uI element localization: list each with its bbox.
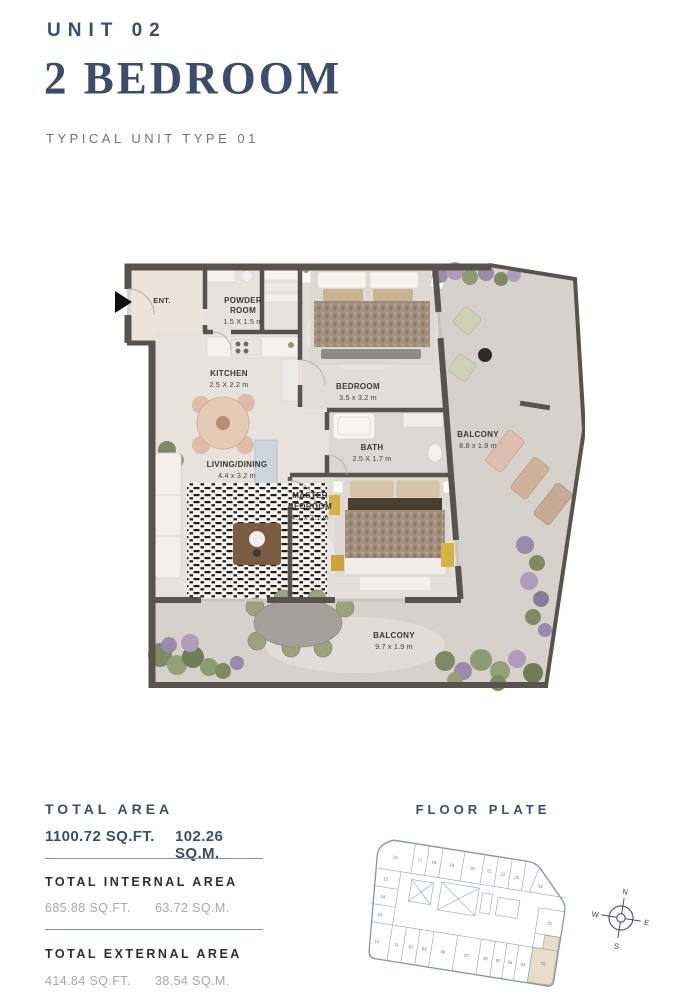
divider bbox=[45, 858, 263, 859]
compass-south: S bbox=[613, 941, 619, 951]
internal-area-values: 685.88 SQ.FT. 63.72 SQ.M. bbox=[45, 901, 263, 915]
floor-plate: FLOOR PLATE bbox=[350, 796, 682, 1000]
room-dims-bedroom: 3.5 x 3.2 m bbox=[339, 393, 377, 402]
unit-number-label: UNIT 02 bbox=[47, 20, 167, 42]
room-dims-powder: 1.5 X 1.5 m bbox=[224, 317, 263, 326]
page-title: 2 BEDROOM bbox=[44, 51, 342, 105]
room-label-entry: ENT. bbox=[153, 296, 170, 305]
floor-plan-svg: ENT. POWDER ROOM 1.5 X 1.5 m KITCHEN 2.5… bbox=[105, 255, 585, 700]
external-area-sqm: 38.54 SQ.M. bbox=[155, 974, 230, 988]
unit-type-subtitle: TYPICAL UNIT TYPE 01 bbox=[46, 131, 259, 146]
master-bed bbox=[345, 510, 445, 558]
outdoor-table bbox=[254, 599, 342, 647]
internal-area-sqm: 63.72 SQ.M. bbox=[155, 901, 230, 915]
brochure-page: UNIT 02 2 BEDROOM TYPICAL UNIT TYPE 01 bbox=[0, 0, 682, 1000]
external-area-values: 414.84 SQ.FT. 38.54 SQ.M. bbox=[45, 974, 263, 988]
divider bbox=[45, 929, 263, 930]
total-area-values: 1100.72 SQ.FT. 102.26 SQ.M. bbox=[45, 828, 263, 845]
room-dims-balcony-bottom: 9.7 x 1.9 m bbox=[375, 642, 413, 651]
internal-area-label: TOTAL INTERNAL AREA bbox=[45, 875, 263, 889]
floor-plan: ENT. POWDER ROOM 1.5 X 1.5 m KITCHEN 2.5… bbox=[105, 255, 585, 700]
sofa bbox=[155, 453, 181, 578]
compass-west: W bbox=[591, 909, 600, 919]
room-label-balcony-bottom: BALCONY bbox=[373, 631, 415, 640]
compass-east: E bbox=[643, 918, 649, 928]
internal-area-sqft: 685.88 SQ.FT. bbox=[45, 901, 131, 915]
floor-plate-title: FLOOR PLATE bbox=[350, 802, 616, 817]
room-label-powder-2: ROOM bbox=[230, 306, 256, 315]
compass-north: N bbox=[622, 887, 629, 897]
total-area-label: TOTAL AREA bbox=[45, 801, 263, 817]
room-label-bath: BATH bbox=[361, 443, 384, 452]
room-dims-bath: 2.5 X 1.7 m bbox=[353, 454, 392, 463]
floor-plate-svg: 16 17 18 19 20 21 22 23 24 15 14 13 12 1… bbox=[350, 824, 682, 1000]
room-label-living: LIVING/DINING bbox=[207, 460, 268, 469]
external-area-sqft: 414.84 SQ.FT. bbox=[45, 974, 131, 988]
room-dims-balcony-side: 8.8 x 1.9 m bbox=[459, 441, 497, 450]
room-label-powder-1: POWDER bbox=[224, 296, 262, 305]
room-dims-kitchen: 2.5 X 2.2 m bbox=[210, 380, 249, 389]
room-label-master-2: BEDROOM bbox=[288, 502, 332, 511]
bed bbox=[314, 301, 430, 347]
room-dims-master: 4.1 x 3.1 m bbox=[291, 513, 329, 522]
room-label-kitchen: KITCHEN bbox=[210, 369, 248, 378]
room-label-balcony-side: BALCONY bbox=[457, 430, 499, 439]
room-label-bedroom: BEDROOM bbox=[336, 382, 380, 391]
total-area-sqm: 102.26 SQ.M. bbox=[175, 828, 263, 862]
balcony-side-table bbox=[478, 348, 492, 362]
external-area-label: TOTAL EXTERNAL AREA bbox=[45, 947, 263, 961]
area-stats: TOTAL AREA 1100.72 SQ.FT. 102.26 SQ.M. T… bbox=[45, 798, 269, 998]
room-label-master-1: MASTER bbox=[292, 491, 328, 500]
compass: N E S W bbox=[587, 883, 654, 955]
room-dims-living: 4.4 x 3.2 m bbox=[218, 471, 256, 480]
total-area-sqft: 1100.72 SQ.FT. bbox=[45, 828, 155, 845]
